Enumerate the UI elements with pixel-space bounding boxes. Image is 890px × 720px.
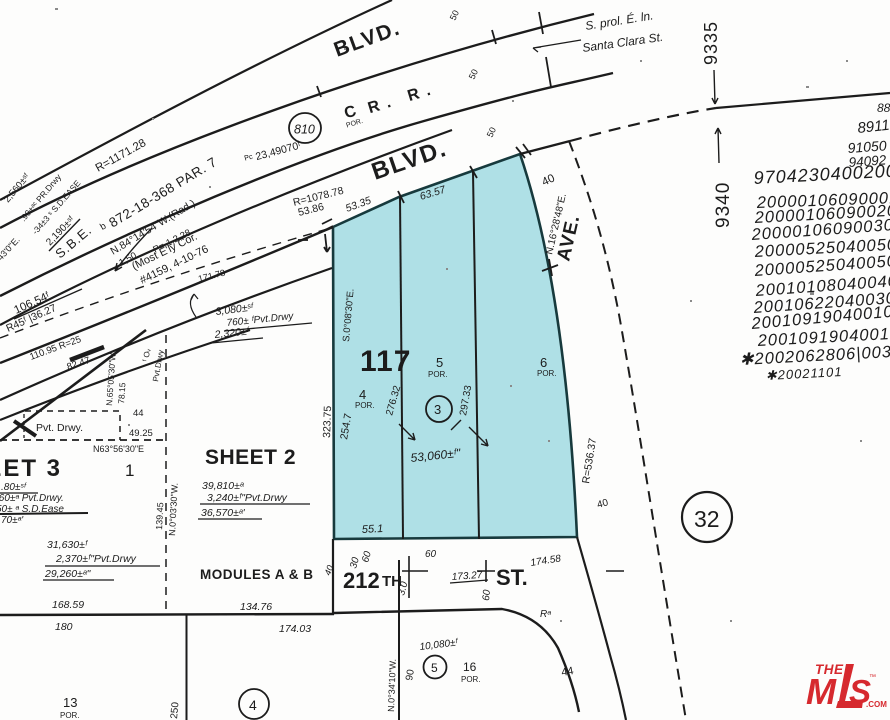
svg-text:2,370±ᶠ"Pvt.Drwy: 2,370±ᶠ"Pvt.Drwy — [55, 553, 137, 565]
svg-text:.80±ˢᶠ: .80±ˢᶠ — [1, 482, 27, 493]
svg-text:SHEET 2: SHEET 2 — [205, 446, 296, 469]
svg-text:,60±ᵃ Pvt.Drwy.: ,60±ᵃ Pvt.Drwy. — [0, 493, 64, 504]
svg-text:250: 250 — [169, 701, 181, 719]
svg-text:174.03: 174.03 — [279, 623, 311, 635]
svg-text:323.75: 323.75 — [321, 405, 334, 438]
svg-text:139.45: 139.45 — [154, 502, 165, 530]
svg-text:810: 810 — [294, 123, 315, 137]
svg-text:3: 3 — [434, 402, 441, 417]
svg-text:78.15: 78.15 — [116, 382, 127, 404]
svg-text:117: 117 — [360, 345, 411, 378]
svg-text:13: 13 — [63, 695, 77, 710]
svg-text:.COM: .COM — [866, 700, 887, 709]
svg-text:3,240±ᶠ"Pvt.Drwy: 3,240±ᶠ"Pvt.Drwy — [207, 492, 288, 504]
svg-text:168.59: 168.59 — [52, 599, 84, 611]
svg-text:55.1: 55.1 — [362, 523, 384, 536]
svg-text:N.0°34'10"W.: N.0°34'10"W. — [386, 659, 398, 712]
svg-text:29,260±ᵃ": 29,260±ᵃ" — [44, 568, 92, 580]
svg-text:70±ᵃ': 70±ᵃ' — [1, 515, 24, 526]
svg-text:SHEET 3: SHEET 3 — [0, 455, 62, 482]
svg-text:1: 1 — [125, 461, 134, 480]
svg-text:MODULES A & B: MODULES A & B — [200, 567, 314, 582]
svg-text:49.25: 49.25 — [129, 428, 153, 439]
svg-text:60: 60 — [425, 549, 437, 560]
svg-text:39,810±ᵃ: 39,810±ᵃ — [202, 480, 244, 492]
svg-text:36,570±ᵃ': 36,570±ᵃ' — [201, 507, 246, 519]
svg-text:16: 16 — [463, 660, 477, 674]
svg-text:88: 88 — [877, 101, 890, 115]
svg-text:POR.: POR. — [60, 711, 80, 720]
svg-text:5: 5 — [436, 355, 443, 370]
svg-text:9340: 9340 — [713, 182, 734, 228]
svg-text:4: 4 — [249, 697, 257, 713]
svg-text:60: 60 — [481, 589, 493, 601]
svg-text:POR.: POR. — [355, 401, 375, 410]
svg-text:6: 6 — [540, 355, 547, 370]
svg-text:POR.: POR. — [461, 675, 481, 684]
svg-text:4: 4 — [359, 387, 366, 402]
svg-text:5: 5 — [431, 661, 438, 675]
svg-text:POR.: POR. — [537, 369, 557, 378]
svg-text:44: 44 — [133, 408, 144, 419]
svg-text:M: M — [806, 671, 837, 712]
svg-text:180: 180 — [55, 621, 73, 633]
svg-text:134.76: 134.76 — [240, 601, 272, 613]
svg-text:44: 44 — [560, 665, 574, 679]
svg-text:32: 32 — [694, 506, 720, 532]
svg-text:POR.: POR. — [428, 370, 448, 379]
svg-text:8911: 8911 — [857, 117, 890, 137]
svg-text:212: 212 — [343, 568, 380, 593]
svg-text:Pvt. Drwy.: Pvt. Drwy. — [36, 422, 83, 434]
svg-text:™: ™ — [869, 674, 876, 681]
svg-text:9335: 9335 — [701, 21, 721, 65]
svg-text:31,630±ᶠ: 31,630±ᶠ — [47, 539, 89, 551]
svg-text:ST.: ST. — [496, 565, 528, 590]
svg-text:Rᵃ: Rᵃ — [540, 609, 551, 620]
svg-text:N63°56'30"E: N63°56'30"E — [93, 444, 144, 454]
